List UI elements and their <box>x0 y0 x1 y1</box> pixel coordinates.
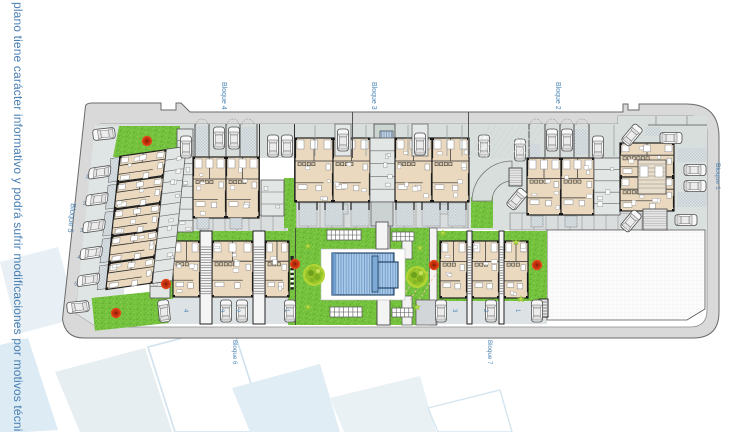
svg-text:Bloque 3: Bloque 3 <box>370 82 377 110</box>
svg-text:Bloque 1: Bloque 1 <box>714 163 721 190</box>
svg-text:Bloque 7: Bloque 7 <box>486 340 493 365</box>
svg-text:Bloque 2: Bloque 2 <box>554 82 561 110</box>
svg-text:plano tiene carácter informati: plano tiene carácter informativo y podrá… <box>11 2 25 432</box>
svg-text:Bloque 6: Bloque 6 <box>231 340 238 365</box>
svg-text:Bloque 4: Bloque 4 <box>220 82 227 110</box>
